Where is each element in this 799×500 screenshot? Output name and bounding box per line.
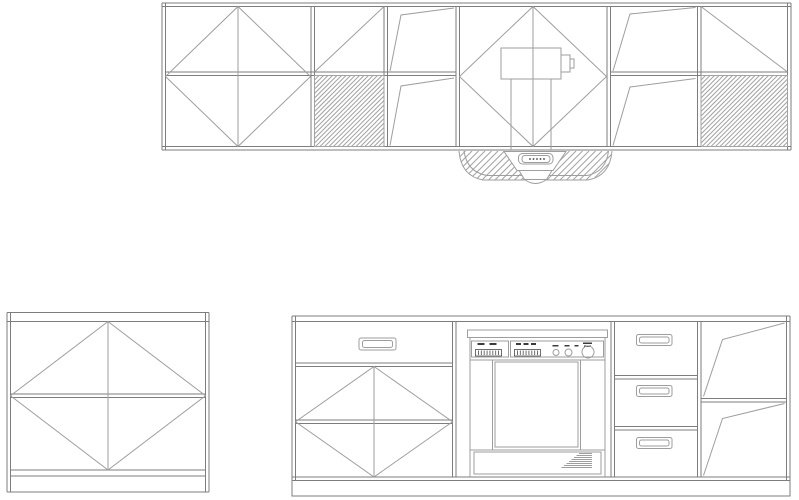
- dishwasher-knob: [553, 350, 559, 356]
- door-swing-symbol: [390, 8, 454, 71]
- cad-drawing-canvas: [0, 0, 799, 500]
- dishwasher-dial: [582, 346, 594, 358]
- wall-cabinet-run: [162, 3, 799, 150]
- hood-button: [529, 158, 531, 160]
- fan-unit: [501, 48, 561, 79]
- hood-button: [533, 158, 535, 160]
- door-swing-symbol: [613, 8, 696, 72]
- drawer-handle: [637, 386, 673, 397]
- dishwasher-knob: [565, 349, 572, 356]
- door-swing-symbol: [613, 79, 696, 146]
- drawer-handle: [637, 335, 673, 346]
- hood-button: [543, 158, 545, 160]
- dishwasher-door-panel: [495, 362, 578, 447]
- door-swing-symbol: [390, 78, 454, 146]
- plinth: [292, 481, 790, 497]
- door-swing-symbol: [704, 323, 785, 397]
- door-diagonal-symbol: [315, 7, 385, 73]
- hatched-panel: [630, 76, 799, 147]
- button-strip: [476, 350, 502, 357]
- base-cabinet-run: [292, 316, 790, 496]
- hood-button: [536, 158, 538, 160]
- base-cabinet-single: [7, 313, 209, 493]
- drawer-handle: [637, 438, 673, 449]
- dishwasher-trim: [468, 330, 608, 338]
- dishwasher-door: [470, 360, 605, 450]
- range-hood: [429, 151, 641, 184]
- button-strip: [515, 350, 541, 357]
- hood-lamp: [519, 171, 552, 180]
- door-swing-symbol: [704, 404, 785, 476]
- fan-motor: [561, 55, 570, 72]
- kitchen-elevation-drawing: [0, 0, 799, 500]
- drawer-handle: [359, 338, 396, 350]
- hood-button: [540, 158, 542, 160]
- door-diagonal-symbol: [701, 7, 788, 73]
